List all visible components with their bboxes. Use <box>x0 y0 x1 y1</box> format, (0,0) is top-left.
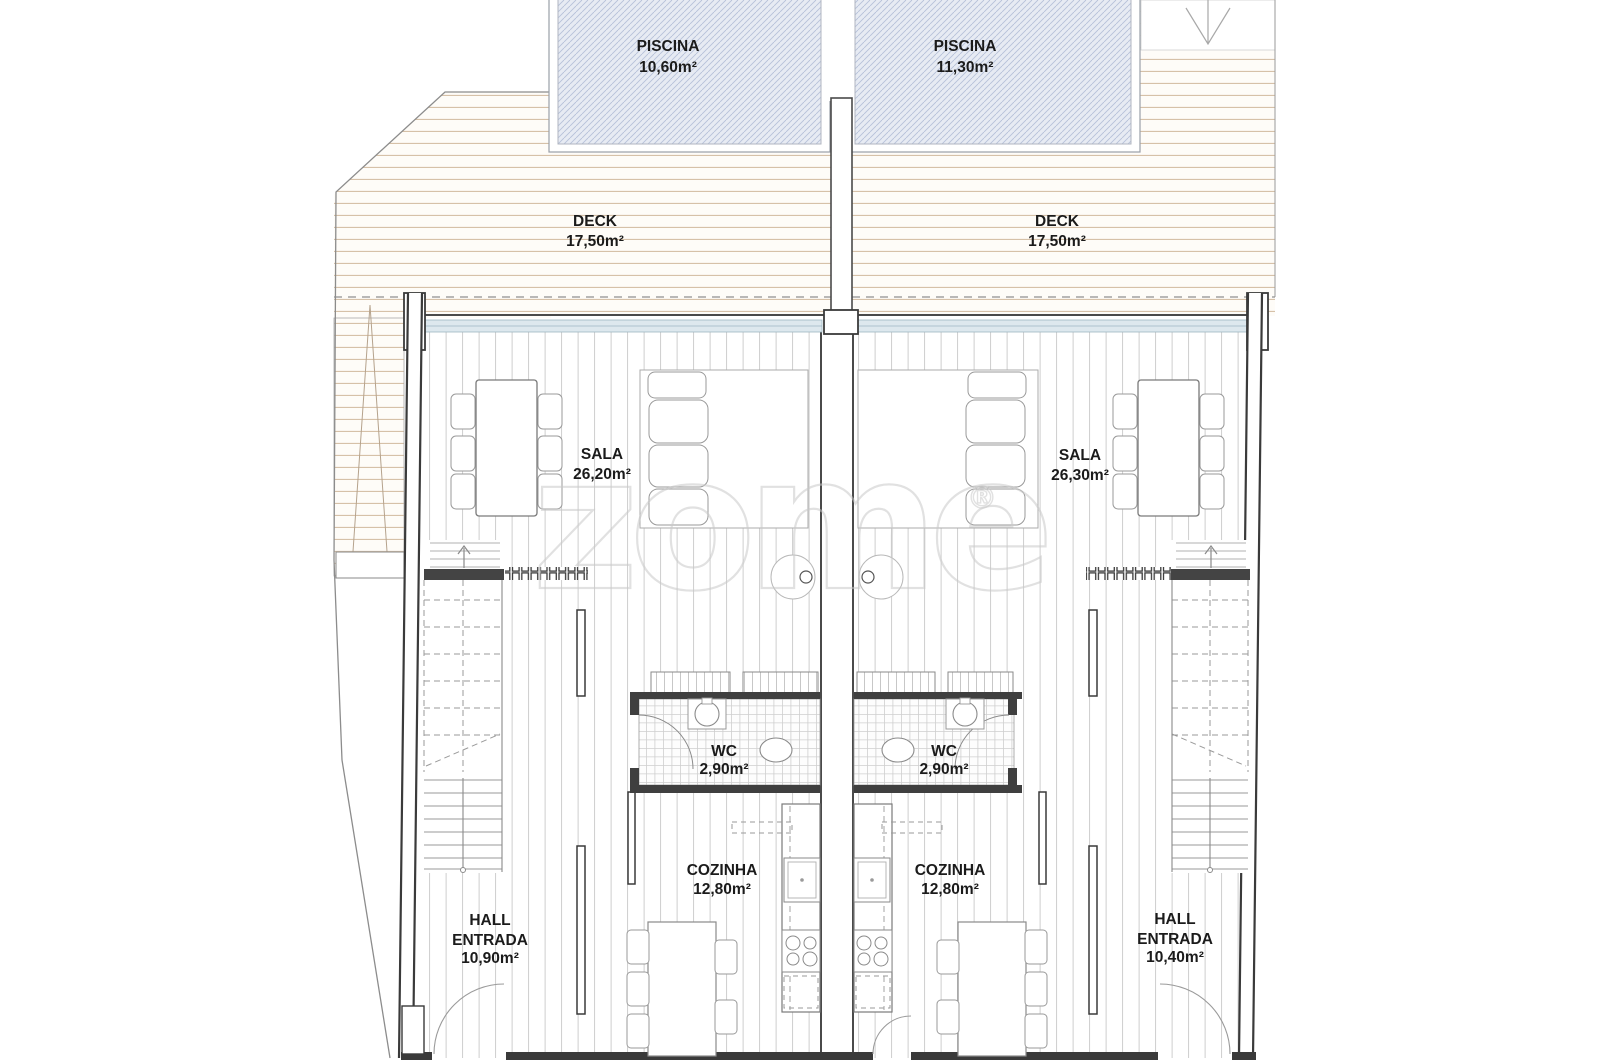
svg-text:COZINHA: COZINHA <box>915 862 986 879</box>
chair <box>1025 972 1047 1006</box>
svg-text:12,80m²: 12,80m² <box>693 881 751 898</box>
stairwell-right <box>1170 540 1252 873</box>
svg-text:17,50m²: 17,50m² <box>1028 233 1086 250</box>
pool-gap <box>827 0 849 101</box>
svg-text:10,40m²: 10,40m² <box>1146 949 1204 966</box>
kitchen-table <box>958 922 1026 1056</box>
svg-text:HALL: HALL <box>469 912 510 929</box>
tap <box>702 698 712 704</box>
toilet <box>760 738 792 762</box>
chair <box>715 940 737 974</box>
floor-plan-page: zome ® PISCINA 10,60m² PISCINA 11,30m² D… <box>0 0 1600 1062</box>
svg-text:PISCINA: PISCINA <box>637 38 700 55</box>
svg-text:26,30m²: 26,30m² <box>1051 467 1109 484</box>
kitchen-wall-right <box>1039 792 1046 884</box>
svg-text:2,90m²: 2,90m² <box>699 761 748 778</box>
hall-kitchen-wall-right <box>1089 846 1097 1014</box>
basin <box>695 702 719 726</box>
stair-landing-step <box>336 552 404 578</box>
corridor-wall-right <box>1089 610 1097 696</box>
wall-block-row-right <box>1086 567 1171 580</box>
chair <box>1113 474 1137 509</box>
svg-text:WC: WC <box>931 743 957 760</box>
chair <box>627 1014 649 1048</box>
exterior-stair <box>334 318 404 576</box>
svg-text:ENTRADA: ENTRADA <box>1137 931 1213 948</box>
chair <box>627 972 649 1006</box>
pool-left <box>549 0 830 152</box>
chair <box>1113 394 1137 429</box>
svg-text:11,30m²: 11,30m² <box>937 59 994 76</box>
svg-text:10,60m²: 10,60m² <box>639 59 697 76</box>
floor-plan-drawing: zome ® PISCINA 10,60m² PISCINA 11,30m² D… <box>0 0 1600 1062</box>
chair <box>1200 474 1224 509</box>
toilet <box>882 738 914 762</box>
svg-text:26,20m²: 26,20m² <box>573 466 631 483</box>
svg-text:DECK: DECK <box>1035 213 1080 230</box>
chair <box>1200 394 1224 429</box>
chair <box>1113 436 1137 471</box>
svg-text:®: ® <box>967 481 997 516</box>
stove <box>782 930 820 972</box>
svg-text:HALL: HALL <box>1154 911 1195 928</box>
svg-text:WC: WC <box>711 743 737 760</box>
svg-text:DECK: DECK <box>573 213 618 230</box>
entry-niche <box>402 1006 424 1054</box>
svg-text:12,80m²: 12,80m² <box>921 881 979 898</box>
chair <box>715 1000 737 1034</box>
central-wall-upper <box>831 98 852 314</box>
kitchen-counter <box>854 804 892 1012</box>
sofa-armrest <box>968 372 1026 398</box>
dining-table <box>476 380 537 516</box>
kitchen-counter <box>782 804 820 1012</box>
hall-kitchen-wall-left <box>577 846 585 1014</box>
dining-table <box>1138 380 1199 516</box>
svg-text:SALA: SALA <box>581 446 623 463</box>
chair <box>1200 436 1224 471</box>
stairwell-left <box>423 540 504 873</box>
chair <box>1025 930 1047 964</box>
sofa-armrest <box>648 372 706 398</box>
chair <box>451 474 475 509</box>
stove <box>854 930 892 972</box>
chair <box>451 394 475 429</box>
svg-text:2,90m²: 2,90m² <box>919 761 968 778</box>
kitchen-wall-left <box>628 792 635 884</box>
svg-text:COZINHA: COZINHA <box>687 862 758 879</box>
chair <box>1025 1014 1047 1048</box>
tap <box>960 698 970 704</box>
svg-text:SALA: SALA <box>1059 447 1101 464</box>
svg-text:PISCINA: PISCINA <box>934 38 997 55</box>
kitchen-table <box>648 922 716 1056</box>
chair <box>937 1000 959 1034</box>
basin <box>953 702 977 726</box>
svg-text:17,50m²: 17,50m² <box>566 233 624 250</box>
central-wall-cap <box>824 310 858 334</box>
pool-right <box>846 0 1140 152</box>
chair <box>451 436 475 471</box>
svg-text:10,90m²: 10,90m² <box>461 950 519 967</box>
svg-text:ENTRADA: ENTRADA <box>452 932 528 949</box>
chair <box>627 930 649 964</box>
chair <box>937 940 959 974</box>
